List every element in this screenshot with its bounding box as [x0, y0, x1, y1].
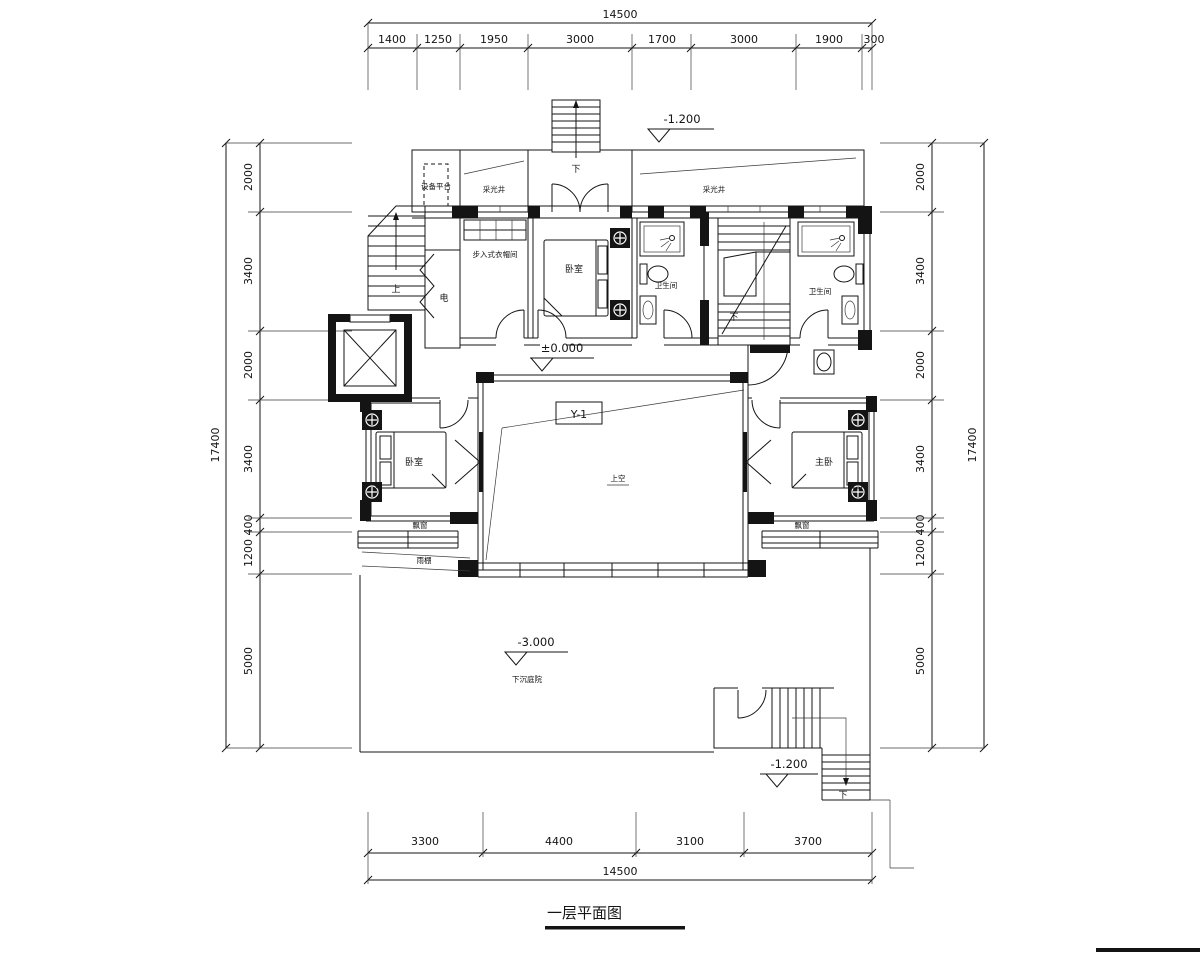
dim-left-seg-4: 400 — [242, 515, 255, 536]
bedroom-top-label: 卧室 — [565, 263, 583, 275]
column-icon — [362, 410, 382, 430]
bay-window-right-label: 飘窗 — [795, 520, 810, 530]
master-bedroom-label: 主卧 — [815, 456, 833, 468]
column-icon — [362, 482, 382, 502]
entry-double-door — [528, 150, 632, 212]
walk-in-closet-label: 步入式衣帽间 — [473, 249, 518, 259]
bathroom-left-label: 卫生间 — [655, 280, 678, 290]
dim-left-seg-5: 1200 — [242, 539, 255, 567]
dim-left-seg-2: 2000 — [242, 351, 255, 379]
level-indoor-value: ±0.000 — [541, 341, 584, 355]
dim-top-total: 14500 — [603, 8, 638, 21]
master-bedroom: 主卧 飘窗 — [748, 396, 878, 548]
corridor-basin-icon — [814, 350, 834, 374]
dim-top-seg-1: 1250 — [424, 33, 452, 46]
canopy: 雨棚 — [362, 552, 470, 571]
sliding-door-left — [455, 432, 483, 492]
dim-top-seg-3: 3000 — [566, 33, 594, 46]
south-glass-wall — [458, 560, 766, 577]
right-dimension-chain: 17400 2000 3400 2000 3400 400 1200 5000 — [880, 139, 988, 752]
electrical-shaft: 电 — [420, 250, 460, 348]
level-marker-courtyard: -3.000 — [505, 635, 568, 665]
sunken-courtyard-label: 下沉庭院 — [512, 674, 542, 684]
bay-window-left-label: 飘窗 — [413, 520, 428, 530]
dim-right-seg-3: 3400 — [914, 445, 927, 473]
column-icon — [610, 300, 630, 320]
sliding-door-right — [743, 432, 771, 492]
dim-bottom-total: 14500 — [603, 865, 638, 878]
dim-right-seg-2: 2000 — [914, 351, 927, 379]
bottom-dimension-chain: 3300 4400 3100 3700 14500 — [364, 812, 876, 884]
y1-callout: Y-1 — [556, 402, 602, 424]
canopy-label: 雨棚 — [417, 555, 432, 565]
bedroom-left-label: 卧室 — [405, 456, 423, 468]
central-stair: 下 — [718, 218, 790, 385]
bay-window-left — [358, 531, 458, 548]
void-above-label: 上空 — [611, 473, 626, 483]
walk-in-closet: 步入式衣帽间 — [464, 220, 526, 338]
bathroom-right: 卫生间 — [798, 222, 863, 338]
sink-icon — [842, 296, 858, 324]
top-dimension-chain: 14500 1400 1250 1950 3000 1700 3000 1900… — [364, 8, 885, 90]
level-courtyard-value: -3.000 — [517, 635, 554, 649]
bedroom-left: 卧室 飘窗 雨棚 — [358, 396, 478, 571]
dim-right-seg-0: 2000 — [914, 163, 927, 191]
shower-head-icon — [830, 236, 845, 252]
dim-left-seg-3: 3400 — [242, 445, 255, 473]
dim-left-seg-0: 2000 — [242, 163, 255, 191]
stair-center-down-label: 下 — [729, 313, 738, 323]
dim-right-total: 17400 — [966, 428, 979, 463]
left-dimension-chain: 17400 2000 3400 2000 3400 400 1200 5000 — [209, 139, 352, 752]
light-well-left: 采光井 — [460, 150, 528, 212]
equipment-platform-label: 设备平台 — [421, 181, 451, 191]
level-marker-top: -1.200 — [648, 112, 714, 142]
equipment-platform: 设备平台 — [412, 150, 460, 212]
dim-top-seg-0: 1400 — [378, 33, 406, 46]
stair-courtyard-down-label: 下 — [838, 791, 847, 801]
bathroom-right-label: 卫生间 — [809, 286, 832, 296]
living-room: Y-1 上空 — [455, 353, 771, 577]
entry-stair-top: 下 — [552, 100, 600, 175]
north-zone: 下 -1.200 设备平台 采光井 采光井 — [412, 100, 864, 218]
floor-plan-drawing: 14500 1400 1250 1950 3000 1700 3000 1900… — [0, 0, 1200, 960]
border-fragment — [1096, 948, 1200, 952]
dim-top-seg-6: 1900 — [815, 33, 843, 46]
dim-top-seg-4: 1700 — [648, 33, 676, 46]
dim-left-seg-1: 3400 — [242, 257, 255, 285]
dim-bottom-seg-3: 3700 — [794, 835, 822, 848]
floor-plan-page: 14500 1400 1250 1950 3000 1700 3000 1900… — [0, 0, 1200, 960]
stair-top-down-label: 下 — [571, 165, 580, 175]
dim-right-seg-6: 5000 — [914, 647, 927, 675]
dim-right-seg-5: 1200 — [914, 539, 927, 567]
dim-left-total: 17400 — [209, 428, 222, 463]
dim-top-seg-5: 3000 — [730, 33, 758, 46]
dim-right-seg-1: 3400 — [914, 257, 927, 285]
side-stair-left: 上 — [368, 206, 425, 310]
title-underline — [545, 926, 685, 930]
level-top-value: -1.200 — [663, 112, 700, 126]
middle-band: 步入式衣帽间 卧室 卫生间 下 卫生间 — [460, 206, 872, 385]
dim-bottom-seg-0: 3300 — [411, 835, 439, 848]
bedroom-top: 卧室 — [538, 228, 630, 338]
dim-right-seg-4: 400 — [914, 515, 927, 536]
level-courtyard-stair-value: -1.200 — [770, 757, 807, 771]
drawing-title: 一层平面图 — [547, 904, 622, 922]
sink-icon — [640, 296, 656, 324]
bay-window-right — [762, 531, 878, 548]
electrical-shaft-label: 电 — [439, 292, 448, 304]
dim-bottom-seg-2: 3100 — [676, 835, 704, 848]
shower-head-icon — [660, 236, 675, 252]
stair-left-up-label: 上 — [391, 284, 400, 295]
dim-left-seg-6: 5000 — [242, 647, 255, 675]
drawing-title-block: 一层平面图 — [545, 904, 1200, 952]
dim-top-seg-7: 300 — [864, 33, 885, 46]
light-well-right: 采光井 — [632, 150, 864, 212]
column-icon — [848, 410, 868, 430]
west-zone: 上 电 — [328, 206, 460, 402]
light-well-left-label: 采光井 — [483, 184, 506, 194]
toilet-icon — [834, 264, 863, 284]
sunken-courtyard: -3.000 下沉庭院 下 -1.200 — [360, 548, 914, 868]
bathroom-left: 卫生间 — [640, 222, 692, 338]
elevator — [328, 314, 412, 402]
y1-label: Y-1 — [570, 408, 587, 421]
column-icon — [610, 228, 630, 248]
dim-top-seg-2: 1950 — [480, 33, 508, 46]
dim-bottom-seg-1: 4400 — [545, 835, 573, 848]
level-marker-courtyard-stair: -1.200 — [760, 757, 818, 787]
light-well-right-label: 采光井 — [703, 184, 726, 194]
